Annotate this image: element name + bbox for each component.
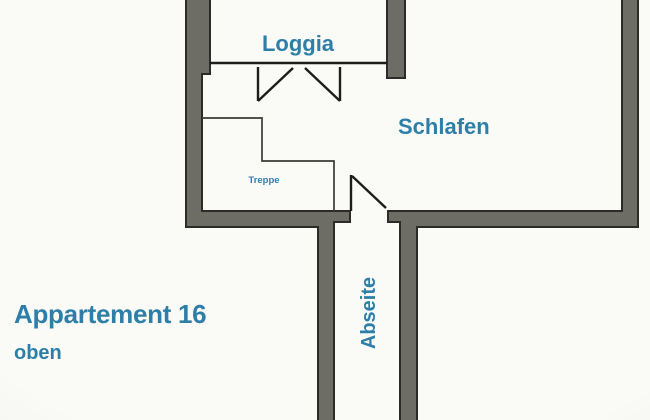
interior-door-swing xyxy=(352,176,386,208)
wall-right-bottom-corridor xyxy=(388,0,638,420)
loggia-door-right-swing xyxy=(305,68,340,101)
room-label-treppe: Treppe xyxy=(248,175,279,186)
floor-plan-page: Loggia Schlafen Treppe Abseite Apparteme… xyxy=(0,0,650,420)
room-label-abseite: Abseite xyxy=(358,277,380,349)
loggia-door-left-swing xyxy=(258,68,293,101)
plan-title-block: Appartement 16 oben xyxy=(14,300,206,365)
plan-subtitle: oben xyxy=(14,342,206,365)
room-label-schlafen: Schlafen xyxy=(398,114,490,139)
room-label-loggia: Loggia xyxy=(262,31,335,56)
wall-top-center xyxy=(387,0,405,78)
plan-title: Appartement 16 xyxy=(14,300,206,329)
stair-boundary-line xyxy=(202,118,334,211)
